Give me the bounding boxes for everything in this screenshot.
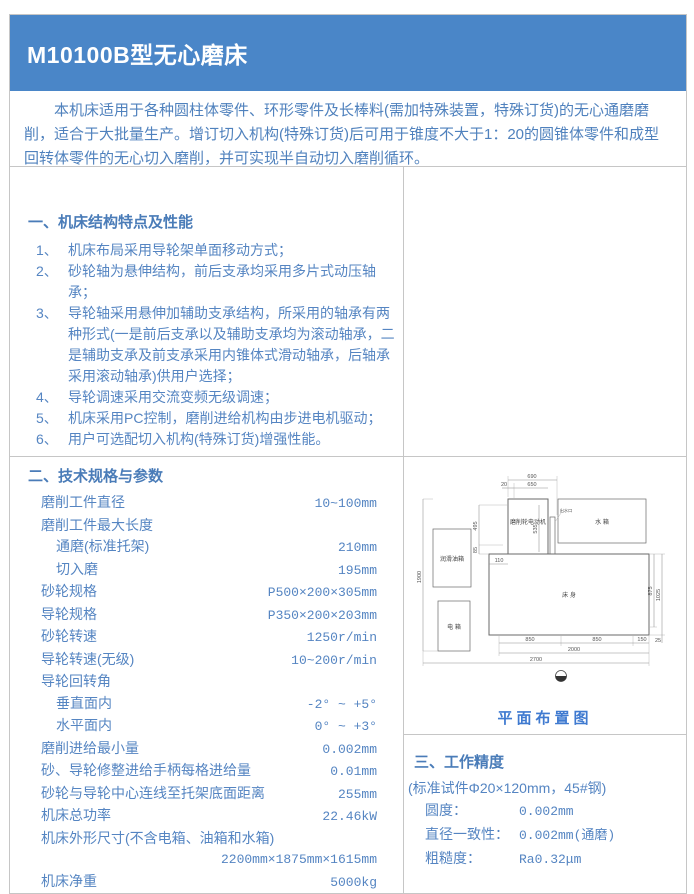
feature-item: 1、机床布局采用导轮架单面移动方式；	[28, 240, 395, 261]
spec-label: 磨削工件直径	[41, 492, 125, 514]
spec-row: 2200mm×1875mm×1615mm	[10, 849, 403, 871]
accuracy-row: 直径一致性：0.002mm(通磨)	[404, 823, 686, 847]
bed-label: 床 身	[562, 591, 576, 599]
spec-label: 磨削工件最大长度	[41, 515, 153, 537]
spec-value: 255mm	[338, 784, 377, 806]
spec-value: 2200mm×1875mm×1615mm	[221, 849, 377, 871]
spec-row: 磨削进给最小量0.002mm	[10, 738, 403, 761]
electric-box-label: 电 箱	[447, 623, 461, 631]
feature-item: 5、机床采用PC控制，磨削进给机构由步进电机驱动；	[28, 408, 395, 429]
spec-label: 机床外形尺寸(不含电箱、油箱和水箱)	[41, 828, 274, 850]
spec-label: 磨削进给最小量	[41, 738, 139, 760]
spec-value: 1250r/min	[307, 627, 377, 649]
accuracy-value: 0.002mm	[519, 801, 574, 823]
spec-label: 砂、导轮修整进给手柄每格进给量	[41, 760, 251, 782]
diagram-caption: 平面布置图	[404, 707, 686, 728]
spec-label: 砂轮与导轮中心连线至托架底面距离	[41, 783, 265, 805]
dim-label: 690	[527, 474, 536, 480]
dim-label: 150	[637, 637, 646, 643]
specs-heading: 二、技术规格与参数	[10, 465, 403, 486]
spec-row: 磨削工件直径10~100mm	[10, 492, 403, 515]
feature-text: 用户可选配切入机构(特殊订货)增强性能。	[68, 429, 395, 450]
spec-label: 导轮回转角	[41, 671, 111, 693]
layout-diagram-cell: 润滑油箱 电 箱 磨削轮电动机 水 箱 床 身 出水口 690 20 650	[404, 457, 686, 735]
spec-row: 砂轮规格P500×200×305mm	[10, 581, 403, 604]
spec-value: 0.002mm	[322, 739, 377, 761]
spec-row: 通磨(标准托架)210mm	[10, 536, 403, 559]
dim-label: 110	[495, 558, 504, 564]
spec-label: 机床总功率	[41, 805, 111, 827]
motor-label: 磨削轮电动机	[510, 518, 546, 526]
spec-label: 切入磨	[56, 559, 98, 581]
content-grid: 一、机床结构特点及性能 1、机床布局采用导轮架单面移动方式； 2、砂轮轴为悬伸结…	[10, 167, 686, 893]
feature-text: 导轮轴采用悬伸加辅助支承结构，所采用的轴承有两种形式(一是前后支承以及辅助支承均…	[68, 303, 395, 387]
dim-label: 85	[473, 547, 479, 553]
intro-paragraph: 本机床适用于各种圆柱体零件、环形零件及长棒料(需加特殊装置，特殊订货)的无心通磨…	[10, 91, 686, 167]
spec-label: 导轮转速(无级)	[41, 649, 134, 671]
feature-number: 5、	[28, 408, 68, 429]
feature-item: 3、导轮轴采用悬伸加辅助支承结构，所采用的轴承有两种形式(一是前后支承以及辅助支…	[28, 303, 395, 387]
spec-label: 机床净重	[41, 871, 97, 893]
empty-cell	[404, 167, 686, 457]
dim-label: 1900	[417, 571, 423, 583]
oil-tank-label: 润滑油箱	[440, 555, 464, 563]
spec-value: 0° ~ +3°	[315, 716, 377, 738]
accuracy-section: 三、工作精度 (标准试件Φ20×120mm，45#钢) 圆度：0.002mm 直…	[404, 735, 686, 893]
spec-label: 水平面内	[56, 715, 112, 737]
feature-text: 机床采用PC控制，磨削进给机构由步进电机驱动；	[68, 408, 395, 429]
spec-value: 5000kg	[330, 872, 377, 894]
motor-box	[508, 499, 548, 554]
dim-label: 875	[648, 586, 654, 595]
feature-item: 2、砂轮轴为悬伸结构，前后支承均采用多片式动压轴承；	[28, 261, 395, 303]
operator-symbol-half	[556, 676, 567, 682]
spec-row: 垂直面内-2° ~ +5°	[10, 693, 403, 716]
spec-value: 10~200r/min	[291, 650, 377, 672]
feature-text: 导轮调速采用交流变频无级调速；	[68, 387, 395, 408]
spec-row: 导轮回转角	[10, 671, 403, 693]
dim-label: 1025	[656, 589, 662, 601]
spec-value: 22.46kW	[322, 806, 377, 828]
feature-number: 6、	[28, 429, 68, 450]
feature-number: 1、	[28, 240, 68, 261]
feature-item: 4、导轮调速采用交流变频无级调速；	[28, 387, 395, 408]
feature-number: 4、	[28, 387, 68, 408]
dim-label: 495	[473, 521, 479, 530]
dim-label: 20	[501, 482, 507, 488]
spec-label: 通磨(标准托架)	[56, 536, 149, 558]
outlet-label: 出水口	[560, 507, 573, 514]
spec-value: -2° ~ +5°	[307, 694, 377, 716]
dim-label: 2700	[530, 657, 542, 663]
dim-label: 850	[592, 637, 601, 643]
spec-value: P350×200×203mm	[268, 605, 377, 627]
spec-row: 水平面内0° ~ +3°	[10, 715, 403, 738]
spec-value: 0.01mm	[330, 761, 377, 783]
feature-text: 机床布局采用导轮架单面移动方式；	[68, 240, 395, 261]
spec-label: 垂直面内	[56, 693, 112, 715]
spec-value: 210mm	[338, 537, 377, 559]
product-sheet: M10100B型无心磨床 本机床适用于各种圆柱体零件、环形零件及长棒料(需加特殊…	[9, 14, 687, 894]
spec-row: 砂、导轮修整进给手柄每格进给量0.01mm	[10, 760, 403, 783]
features-list: 1、机床布局采用导轮架单面移动方式； 2、砂轮轴为悬伸结构，前后支承均采用多片式…	[28, 240, 395, 450]
accuracy-label: 粗糙度：	[425, 847, 519, 869]
specs-section: 二、技术规格与参数 磨削工件直径10~100mm 磨削工件最大长度 通磨(标准托…	[10, 457, 404, 893]
spec-value: 10~100mm	[315, 493, 377, 515]
page-title: M10100B型无心磨床	[27, 36, 248, 70]
accuracy-label: 直径一致性：	[425, 823, 519, 845]
spec-row: 砂轮转速1250r/min	[10, 626, 403, 649]
spec-row: 机床外形尺寸(不含电箱、油箱和水箱)	[10, 828, 403, 850]
accuracy-heading: 三、工作精度	[404, 751, 686, 772]
spec-row: 磨削工件最大长度	[10, 515, 403, 537]
spec-label: 导轮规格	[41, 604, 97, 626]
accuracy-label: 圆度：	[425, 799, 519, 821]
accuracy-row: 圆度：0.002mm	[404, 799, 686, 823]
spec-label: 砂轮规格	[41, 581, 97, 603]
dim-label: 2000	[568, 647, 580, 653]
spec-row: 机床总功率22.46kW	[10, 805, 403, 828]
spec-row: 砂轮与导轮中心连线至托架底面距离255mm	[10, 783, 403, 806]
outlet-strip	[550, 517, 555, 554]
spec-value: 195mm	[338, 560, 377, 582]
water-tank-label: 水 箱	[595, 518, 609, 526]
feature-number: 2、	[28, 261, 68, 303]
dim-label: 25	[655, 638, 661, 644]
spec-row: 切入磨195mm	[10, 559, 403, 582]
features-heading: 一、机床结构特点及性能	[28, 211, 395, 232]
accuracy-value: Ra0.32μm	[519, 849, 581, 871]
spec-value: P500×200×305mm	[268, 582, 377, 604]
dim-label: 535	[533, 524, 539, 533]
accuracy-value: 0.002mm(通磨)	[519, 825, 615, 847]
spec-row: 导轮规格P350×200×203mm	[10, 604, 403, 627]
spec-label: 砂轮转速	[41, 626, 97, 648]
accuracy-subtitle: (标准试件Φ20×120mm，45#钢)	[404, 778, 686, 799]
floorplan-drawing: 润滑油箱 电 箱 磨削轮电动机 水 箱 床 身 出水口 690 20 650	[411, 465, 679, 705]
accuracy-row: 粗糙度：Ra0.32μm	[404, 847, 686, 871]
feature-number: 3、	[28, 303, 68, 387]
dim-label: 650	[527, 482, 536, 488]
dim-label: 850	[525, 637, 534, 643]
spec-row: 导轮转速(无级)10~200r/min	[10, 649, 403, 672]
features-section: 一、机床结构特点及性能 1、机床布局采用导轮架单面移动方式； 2、砂轮轴为悬伸结…	[10, 167, 404, 457]
feature-text: 砂轮轴为悬伸结构，前后支承均采用多片式动压轴承；	[68, 261, 395, 303]
title-bar: M10100B型无心磨床	[10, 15, 686, 91]
spec-row: 机床净重5000kg	[10, 871, 403, 894]
feature-item: 6、用户可选配切入机构(特殊订货)增强性能。	[28, 429, 395, 450]
